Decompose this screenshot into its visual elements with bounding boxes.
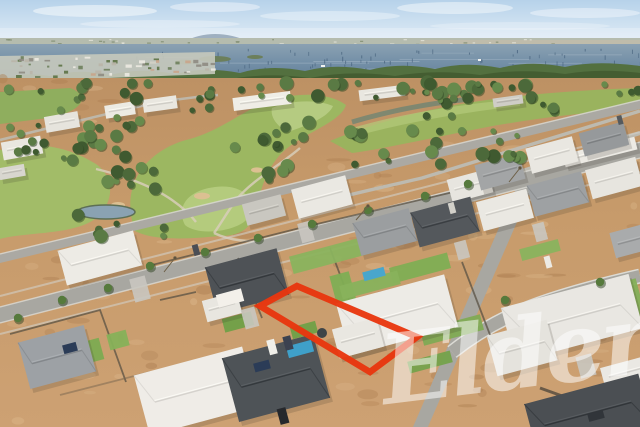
street-tree — [464, 180, 472, 188]
street-tree — [421, 192, 429, 200]
trampoline — [317, 328, 327, 338]
aerial-photo: Elders — [0, 0, 640, 427]
street-tree — [104, 284, 112, 292]
street-tree — [201, 248, 209, 256]
street-tree — [596, 278, 604, 286]
street-tree — [254, 234, 262, 242]
street-tree — [308, 220, 316, 228]
golf-pond — [77, 205, 135, 219]
street-tree — [58, 296, 66, 304]
street-tree — [146, 262, 154, 270]
street-tree — [14, 314, 22, 322]
